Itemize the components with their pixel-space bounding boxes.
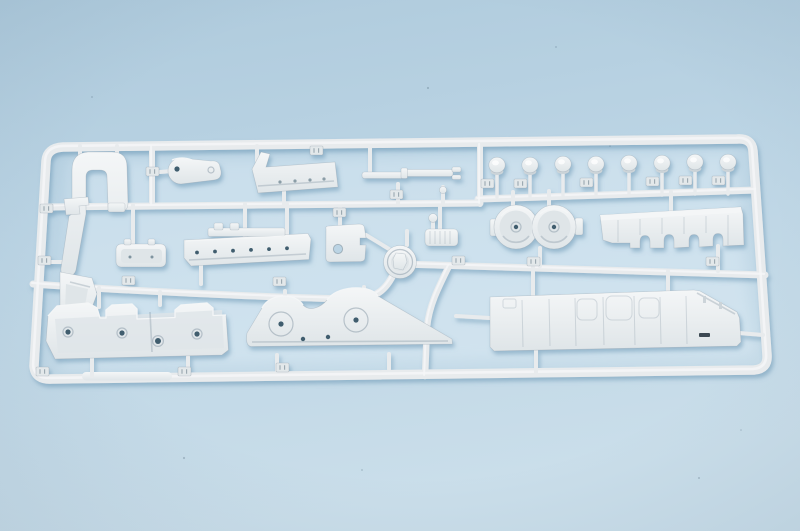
part-main-deck-strip [490,290,741,351]
part-casemate-deck [46,303,229,359]
part-turret-ring [384,246,417,279]
sprue-photo [0,0,800,531]
davit-foot [108,203,125,212]
deck-slot [699,333,710,337]
plate-outline [326,224,366,262]
small-dome [429,214,438,223]
sprue-photo-canvas [0,0,800,531]
small-fitting-bulb [439,186,446,193]
part-plate-with-porthole [326,224,366,262]
part-lever-arm [168,158,221,184]
runner-gate-bump [82,372,172,381]
